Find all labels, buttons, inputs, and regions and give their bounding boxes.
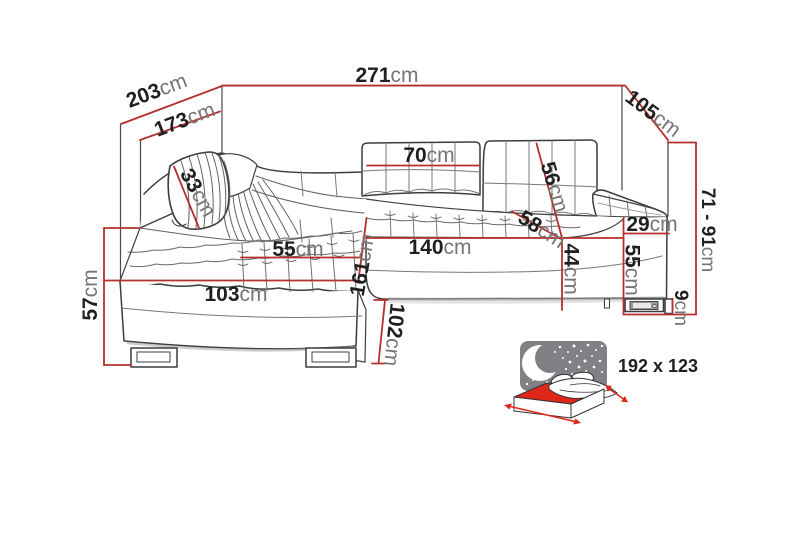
svg-text:55cm: 55cm (272, 238, 323, 261)
svg-text:70cm: 70cm (403, 144, 454, 167)
svg-text:103cm: 103cm (204, 283, 267, 306)
svg-text:192 x 123: 192 x 123 (618, 356, 698, 376)
svg-text:57cm: 57cm (79, 269, 102, 320)
svg-text:173cm: 173cm (151, 98, 218, 142)
svg-text:271cm: 271cm (355, 64, 418, 87)
svg-text:55cm: 55cm (621, 244, 644, 295)
svg-text:105cm: 105cm (621, 86, 685, 142)
svg-text:29cm: 29cm (626, 213, 677, 236)
svg-text:44cm: 44cm (560, 243, 583, 294)
svg-text:9cm: 9cm (670, 290, 691, 326)
svg-text:203cm: 203cm (123, 69, 190, 113)
svg-text:140cm: 140cm (408, 236, 471, 259)
svg-text:71 - 91cm: 71 - 91cm (697, 188, 718, 272)
